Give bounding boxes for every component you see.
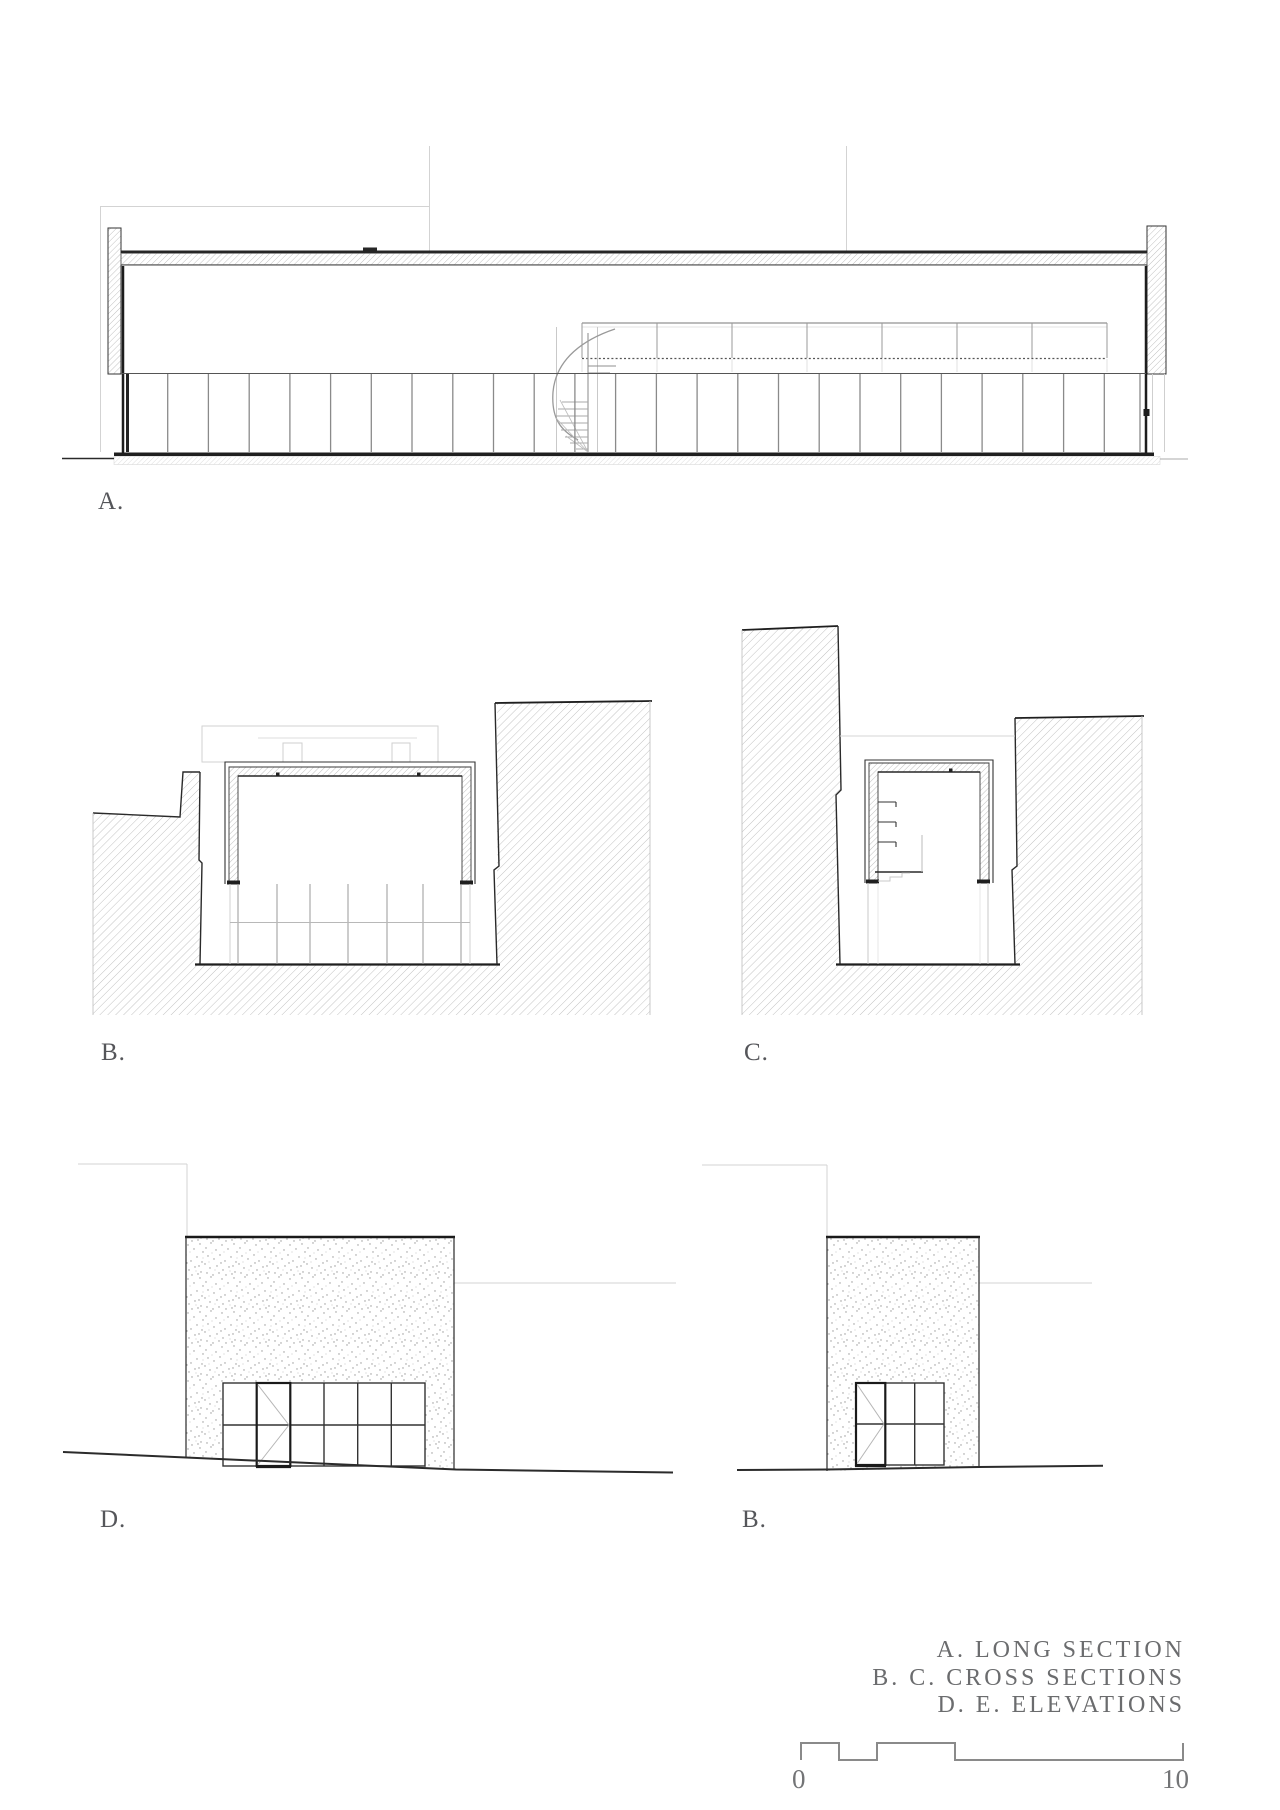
section-a-label: A. <box>98 489 124 514</box>
cross-sections-drawing <box>0 560 1280 1100</box>
section-c-label: C. <box>744 1040 769 1065</box>
drawing-sheet: A. <box>0 0 1280 1810</box>
elevation-e-label: B. <box>742 1507 767 1532</box>
elevations-drawing <box>0 1140 1280 1540</box>
scale-bar <box>0 1600 1280 1810</box>
scale-start-label: 0 <box>792 1766 806 1793</box>
elevation-d-label: D. <box>100 1507 126 1532</box>
long-section-drawing <box>0 0 1280 540</box>
scale-end-label: 10 <box>1140 1766 1189 1793</box>
section-b-label: B. <box>101 1040 126 1065</box>
